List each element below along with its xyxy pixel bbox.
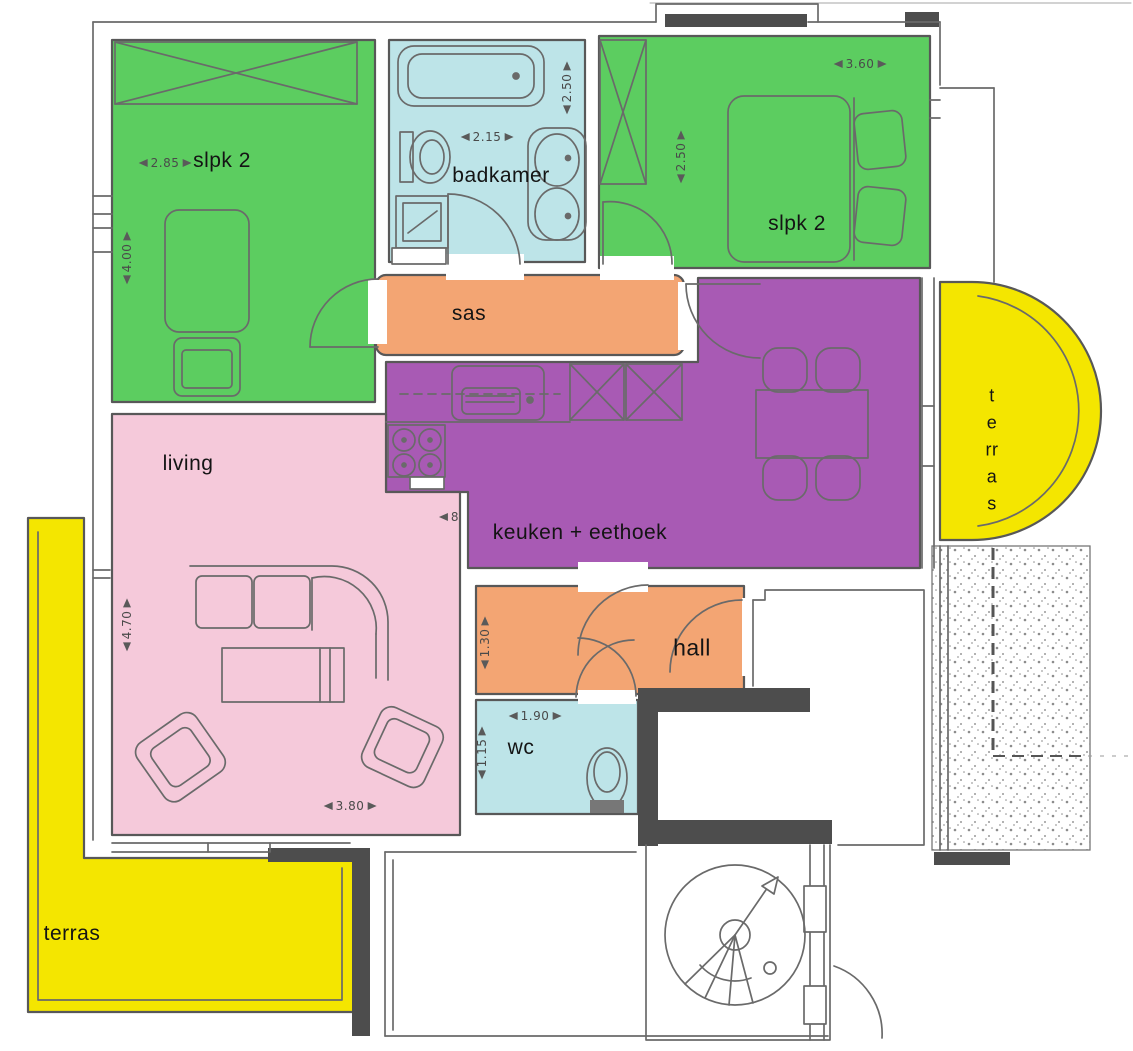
- room-terrace-side: [940, 282, 1101, 540]
- label-sas: sas: [452, 302, 486, 326]
- label-bathroom: badkamer: [452, 164, 549, 188]
- dim-arrow-right: [481, 617, 489, 626]
- dimension-bathroom-width: 2.15: [461, 130, 514, 144]
- spiral-staircase: [665, 865, 805, 1005]
- dim-arrow-left: [324, 802, 333, 810]
- dim-value: 4.70: [120, 611, 134, 640]
- dim-arrow-left: [139, 159, 148, 167]
- dim-arrow-right: [563, 62, 571, 71]
- dim-arrow-left: [481, 660, 489, 669]
- stair-door-2: [804, 986, 826, 1024]
- dim-arrow-left: [563, 105, 571, 114]
- neighbour-terrace-stipple: [932, 546, 1131, 850]
- label-kitchen-dining: keuken + eethoek: [493, 521, 667, 545]
- dim-arrow-left: [677, 174, 685, 183]
- room-sas: [376, 275, 684, 355]
- dimension-living-depth: 4.70: [120, 599, 134, 652]
- label-hall: hall: [673, 635, 711, 662]
- label-terrace-side: t e rr a s: [986, 383, 999, 518]
- dim-value: 2.50: [674, 143, 688, 172]
- dim-arrow-left: [123, 642, 131, 651]
- dim-arrow-right: [504, 133, 513, 141]
- dim-value: 3.60: [846, 57, 875, 71]
- room-bathroom: [389, 40, 585, 262]
- dimension-bedroom-left-depth: 4.00: [120, 232, 134, 285]
- label-wc: wc: [508, 736, 535, 760]
- stair-door: [804, 886, 826, 932]
- dim-value: 3.80: [336, 799, 365, 813]
- dim-arrow-left: [478, 770, 486, 779]
- dim-value: 2.50: [560, 74, 574, 103]
- dim-value: 1.90: [521, 709, 550, 723]
- dim-arrow-left: [509, 712, 518, 720]
- floor-plan: slpk 2 badkamer slpk 2 sas keuken + eeth…: [0, 0, 1133, 1051]
- dim-value: 2.15: [473, 130, 502, 144]
- dim-value: 1.15: [475, 739, 489, 768]
- dimension-hall-depth: 1.30: [478, 617, 492, 670]
- label-terrace-bottom: terras: [44, 922, 101, 946]
- dim-value: 4.00: [120, 244, 134, 273]
- dim-value: 1.30: [478, 629, 492, 658]
- dimension-living-width: 3.80: [324, 799, 377, 813]
- dimension-bedroom-left-width: 2.85: [139, 156, 192, 170]
- dim-arrow-right: [552, 712, 561, 720]
- dimension-kitchen-partial: 8: [439, 510, 459, 524]
- dim-arrow-right: [182, 159, 191, 167]
- dim-arrow-right: [478, 727, 486, 736]
- dim-arrow-left: [461, 133, 470, 141]
- dim-arrow-right: [367, 802, 376, 810]
- dimension-bathroom-depth: 2.50: [560, 62, 574, 115]
- dimension-bedroom-right-depth: 2.50: [674, 131, 688, 184]
- dim-arrow-left: [439, 513, 448, 521]
- dim-value: 8: [451, 510, 459, 524]
- dimension-bedroom-right-width: 3.60: [834, 57, 887, 71]
- dim-arrow-right: [877, 60, 886, 68]
- dim-arrow-left: [123, 275, 131, 284]
- dimension-wc-depth: 1.15: [475, 727, 489, 780]
- dim-arrow-right: [123, 232, 131, 241]
- label-living: living: [163, 452, 214, 476]
- label-bedroom-left: slpk 2: [193, 149, 251, 173]
- dim-arrow-right: [123, 599, 131, 608]
- dim-arrow-right: [677, 131, 685, 140]
- dim-value: 2.85: [151, 156, 180, 170]
- dimension-wc-width: 1.90: [509, 709, 562, 723]
- dim-arrow-left: [834, 60, 843, 68]
- label-bedroom-right: slpk 2: [768, 212, 826, 236]
